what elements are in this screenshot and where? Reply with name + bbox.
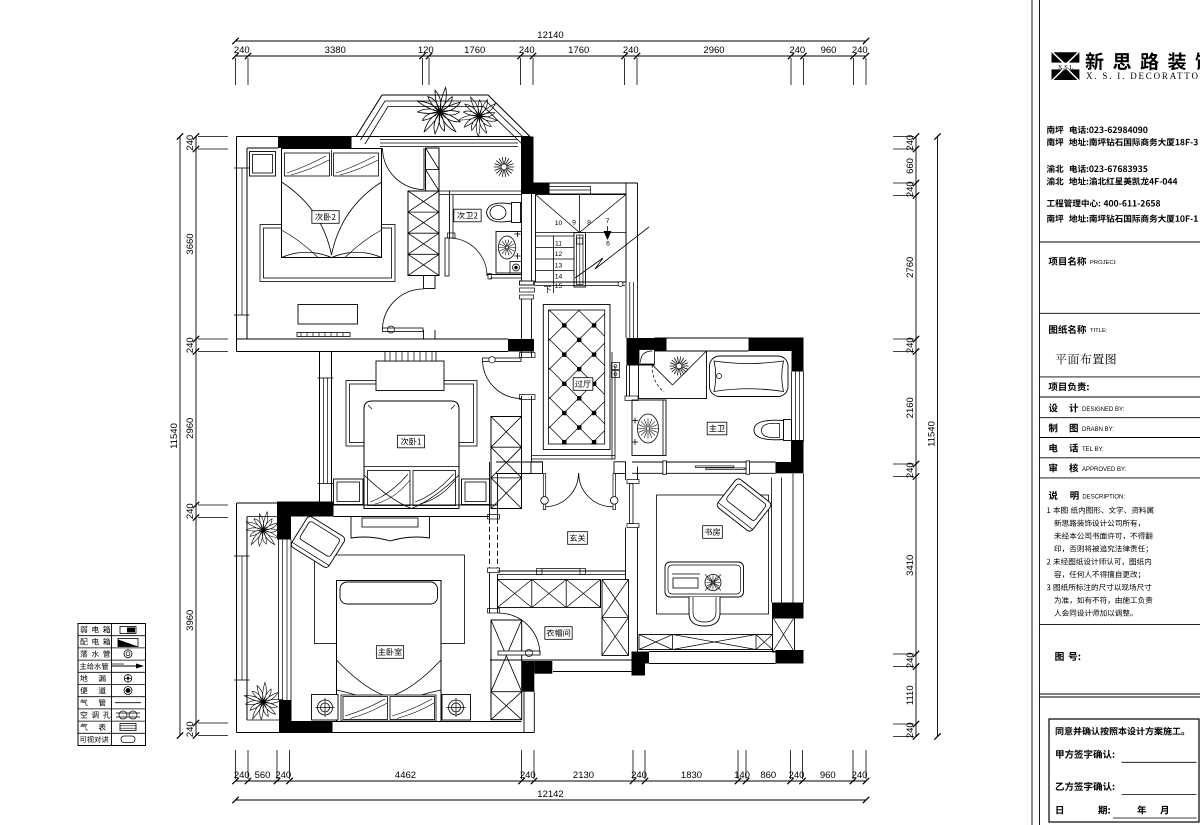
svg-text:240: 240 bbox=[185, 503, 196, 519]
svg-text:240: 240 bbox=[631, 770, 647, 781]
svg-text:660: 660 bbox=[905, 158, 916, 174]
svg-text:TITLE:: TITLE: bbox=[1090, 328, 1108, 334]
svg-text:15: 15 bbox=[555, 283, 563, 290]
svg-text:8: 8 bbox=[587, 220, 591, 227]
svg-text:2960: 2960 bbox=[185, 418, 196, 439]
svg-text:240: 240 bbox=[623, 45, 639, 56]
svg-text:DESCRIPTION:: DESCRIPTION: bbox=[1082, 494, 1125, 500]
svg-text:PROJECI:: PROJECI: bbox=[1090, 260, 1117, 266]
svg-text:960: 960 bbox=[820, 770, 836, 781]
svg-text:240: 240 bbox=[789, 770, 805, 781]
svg-text:960: 960 bbox=[821, 45, 837, 56]
svg-text:560: 560 bbox=[255, 770, 271, 781]
svg-text:240: 240 bbox=[852, 770, 868, 781]
svg-text:860: 860 bbox=[760, 770, 776, 781]
svg-text:240: 240 bbox=[905, 722, 916, 738]
svg-text:240: 240 bbox=[905, 337, 916, 353]
svg-text:X.S.I.: X.S.I. bbox=[1058, 64, 1074, 71]
svg-text:240: 240 bbox=[185, 721, 196, 737]
svg-text:1760: 1760 bbox=[568, 45, 589, 56]
svg-text:240: 240 bbox=[275, 770, 291, 781]
svg-text:240: 240 bbox=[905, 652, 916, 668]
svg-text:2160: 2160 bbox=[905, 397, 916, 418]
svg-text:X. S. I. DECORATTON: X. S. I. DECORATTON bbox=[1086, 71, 1200, 81]
svg-text:240: 240 bbox=[185, 135, 196, 151]
svg-text:2130: 2130 bbox=[573, 770, 594, 781]
svg-text:DESIGNED BY:: DESIGNED BY: bbox=[1082, 407, 1125, 413]
svg-text:240: 240 bbox=[789, 45, 805, 56]
svg-text:7: 7 bbox=[606, 218, 610, 225]
svg-text:240: 240 bbox=[852, 45, 868, 56]
svg-text:12142: 12142 bbox=[537, 789, 563, 800]
svg-text:1110: 1110 bbox=[905, 685, 916, 705]
svg-text:3660: 3660 bbox=[185, 233, 196, 254]
svg-text:12140: 12140 bbox=[537, 30, 563, 41]
svg-text:120: 120 bbox=[418, 45, 434, 56]
svg-text:1830: 1830 bbox=[681, 770, 702, 781]
svg-text:6: 6 bbox=[606, 241, 610, 248]
svg-text:2760: 2760 bbox=[905, 257, 916, 278]
svg-text:240: 240 bbox=[234, 45, 250, 56]
svg-text:2960: 2960 bbox=[703, 45, 724, 56]
svg-text:240: 240 bbox=[905, 135, 916, 151]
svg-text:3380: 3380 bbox=[325, 45, 346, 56]
svg-text:10: 10 bbox=[555, 220, 563, 227]
svg-text:12: 12 bbox=[555, 251, 563, 258]
svg-text:4462: 4462 bbox=[395, 770, 416, 781]
svg-text:11540: 11540 bbox=[169, 423, 180, 449]
svg-text:9: 9 bbox=[572, 220, 576, 227]
svg-text:240: 240 bbox=[185, 337, 196, 353]
svg-text:11: 11 bbox=[555, 241, 562, 248]
svg-text:240: 240 bbox=[905, 181, 916, 197]
svg-text:240: 240 bbox=[519, 45, 535, 56]
svg-text:240: 240 bbox=[234, 770, 250, 781]
svg-text:1760: 1760 bbox=[464, 45, 485, 56]
svg-text:APPROVED BY:: APPROVED BY: bbox=[1082, 467, 1127, 473]
svg-text:3960: 3960 bbox=[185, 610, 196, 631]
svg-text:3410: 3410 bbox=[905, 555, 916, 576]
svg-text:13: 13 bbox=[555, 263, 563, 270]
svg-text:DRABN BY:: DRABN BY: bbox=[1082, 427, 1114, 433]
svg-text:11540: 11540 bbox=[927, 421, 938, 447]
svg-text:240: 240 bbox=[905, 462, 916, 478]
svg-text:240: 240 bbox=[520, 770, 536, 781]
svg-text:140: 140 bbox=[734, 770, 750, 781]
svg-text:TEL BY:: TEL BY: bbox=[1082, 447, 1104, 453]
svg-text:14: 14 bbox=[555, 274, 563, 281]
